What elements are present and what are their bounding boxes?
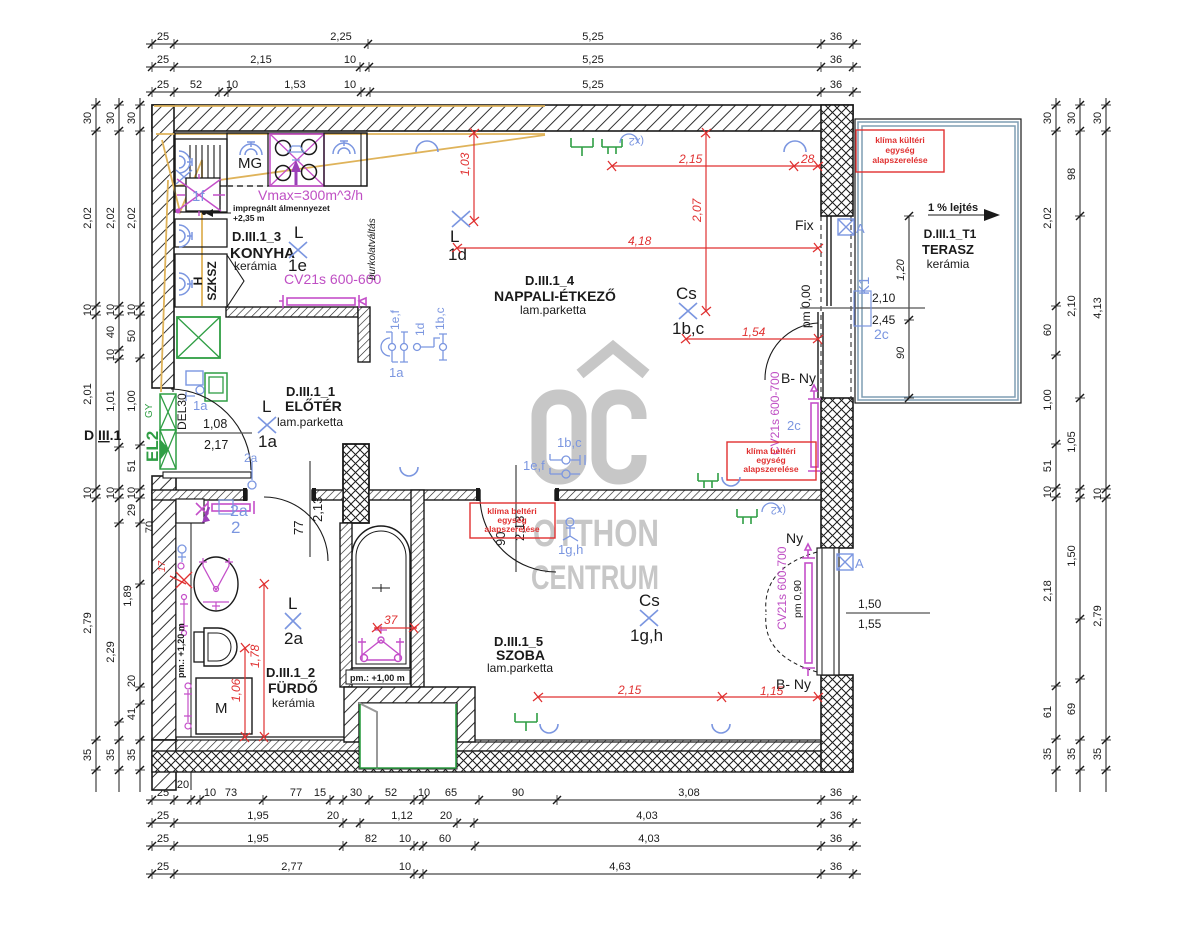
svg-text:1,08: 1,08 (203, 417, 227, 431)
svg-text:OTTHON: OTTHON (533, 513, 659, 555)
svg-text:2,13: 2,13 (310, 497, 325, 522)
svg-text:alapszerelése: alapszerelése (484, 524, 540, 534)
svg-text:EL2: EL2 (143, 431, 162, 462)
svg-text:Ny: Ny (786, 530, 803, 546)
svg-text:L: L (450, 227, 459, 246)
svg-text:D.III.1_1: D.III.1_1 (286, 384, 335, 399)
svg-text:77: 77 (291, 521, 306, 535)
svg-text:1,06: 1,06 (229, 678, 243, 702)
svg-text:1d: 1d (413, 323, 427, 336)
svg-text:D.III.1_3: D.III.1_3 (232, 229, 281, 244)
svg-text:SZKSZ: SZKSZ (205, 261, 219, 300)
svg-text:25: 25 (157, 79, 169, 91)
svg-text:1 % lejtés: 1 % lejtés (928, 202, 978, 214)
svg-text:40: 40 (105, 326, 117, 338)
svg-text:lam.parketta: lam.parketta (487, 661, 553, 675)
svg-text:1g,h: 1g,h (558, 542, 583, 557)
svg-text:kerámia: kerámia (927, 257, 970, 271)
svg-text:10: 10 (344, 79, 356, 91)
svg-text:30: 30 (1042, 112, 1054, 124)
svg-text:10: 10 (399, 833, 411, 845)
svg-text:L: L (294, 223, 303, 242)
svg-text:2a: 2a (244, 451, 258, 465)
svg-text:10: 10 (418, 787, 430, 799)
svg-text:30: 30 (1092, 112, 1104, 124)
svg-text:25: 25 (157, 861, 169, 873)
svg-text:2,15: 2,15 (678, 152, 703, 166)
svg-text:4,13: 4,13 (1092, 297, 1104, 318)
svg-text:1,78: 1,78 (248, 644, 262, 668)
svg-text:35: 35 (126, 749, 138, 761)
svg-text:90: 90 (512, 787, 524, 799)
svg-text:alapszerelése: alapszerelése (743, 464, 799, 474)
svg-text:1b,c: 1b,c (557, 435, 582, 450)
svg-text:3,08: 3,08 (678, 787, 699, 799)
svg-text:1,12: 1,12 (391, 810, 412, 822)
svg-text:52: 52 (385, 787, 397, 799)
svg-text:2,79: 2,79 (1092, 605, 1104, 626)
svg-text:klíma kültéri: klíma kültéri (875, 135, 925, 145)
svg-text:pm 0,00: pm 0,00 (799, 284, 813, 328)
svg-text:1,95: 1,95 (247, 833, 268, 845)
svg-text:1e,f: 1e,f (388, 309, 402, 330)
svg-text:20: 20 (126, 675, 138, 687)
svg-text:2,01: 2,01 (82, 383, 94, 404)
svg-text:2,02: 2,02 (126, 207, 138, 228)
svg-text:25: 25 (157, 54, 169, 66)
svg-text:Cs: Cs (639, 591, 660, 610)
svg-text:1e,f: 1e,f (523, 458, 545, 473)
svg-text:36: 36 (830, 833, 842, 845)
svg-text:10: 10 (126, 304, 138, 316)
svg-text:4,03: 4,03 (636, 810, 657, 822)
svg-text:2c: 2c (787, 418, 801, 433)
svg-text:1,53: 1,53 (284, 79, 305, 91)
svg-text:35: 35 (1092, 748, 1104, 760)
svg-text:1,20: 1,20 (895, 258, 907, 280)
svg-text:10: 10 (82, 487, 94, 499)
svg-text:+2,35 m: +2,35 m (233, 213, 265, 223)
svg-text:77: 77 (290, 787, 302, 799)
svg-text:D.III.1_T1: D.III.1_T1 (924, 227, 977, 241)
svg-text:TERASZ: TERASZ (922, 242, 974, 257)
svg-text:1,00: 1,00 (1042, 389, 1054, 410)
svg-text:1b,c: 1b,c (433, 307, 447, 330)
svg-text:2,29: 2,29 (105, 641, 117, 662)
svg-text:30: 30 (126, 112, 138, 124)
svg-text:25: 25 (157, 31, 169, 43)
svg-text:61: 61 (1042, 706, 1054, 718)
svg-text:NAPPALI-ÉTKEZŐ: NAPPALI-ÉTKEZŐ (494, 287, 616, 304)
svg-text:1,03: 1,03 (458, 152, 472, 176)
svg-text:2,07: 2,07 (690, 197, 704, 223)
svg-text:25: 25 (157, 833, 169, 845)
svg-text:2,77: 2,77 (281, 861, 302, 873)
svg-text:36: 36 (830, 787, 842, 799)
svg-text:4,03: 4,03 (638, 833, 659, 845)
svg-text:52: 52 (190, 79, 202, 91)
svg-text:A: A (856, 221, 865, 236)
svg-text:2,15: 2,15 (617, 683, 642, 697)
svg-text:10: 10 (226, 79, 238, 91)
svg-text:2: 2 (231, 518, 240, 537)
svg-text:kerámia: kerámia (234, 259, 277, 273)
svg-text:2,18: 2,18 (1042, 580, 1054, 601)
svg-text:2,25: 2,25 (330, 31, 351, 43)
svg-text:69: 69 (1066, 703, 1078, 715)
svg-text:MG: MG (238, 155, 262, 172)
svg-text:H: H (191, 277, 205, 286)
svg-text:10: 10 (344, 54, 356, 66)
svg-text:1,00: 1,00 (126, 390, 138, 411)
svg-text:2,17: 2,17 (204, 438, 228, 452)
svg-text:51: 51 (1042, 460, 1054, 472)
svg-text:1b,c: 1b,c (672, 319, 705, 338)
svg-text:36: 36 (830, 79, 842, 91)
svg-text:1a: 1a (193, 398, 208, 413)
svg-text:CV21s 600-700: CV21s 600-700 (775, 546, 789, 630)
svg-text:10: 10 (204, 787, 216, 799)
svg-text:41: 41 (126, 708, 138, 720)
svg-text:D.III.1_4: D.III.1_4 (525, 273, 575, 288)
svg-text:2,10: 2,10 (1066, 295, 1078, 316)
svg-text:lam.parketta: lam.parketta (277, 415, 343, 429)
svg-text:35: 35 (1066, 748, 1078, 760)
svg-text:36: 36 (830, 810, 842, 822)
svg-text:30: 30 (82, 112, 94, 124)
svg-text:60: 60 (1042, 324, 1054, 336)
svg-text:5,25: 5,25 (582, 54, 603, 66)
svg-text:alapszerelése: alapszerelése (872, 155, 928, 165)
svg-text:36: 36 (830, 54, 842, 66)
svg-text:2,02: 2,02 (105, 207, 117, 228)
svg-text:35: 35 (82, 749, 94, 761)
svg-text:2a: 2a (284, 629, 303, 648)
svg-text:10: 10 (105, 487, 117, 499)
svg-text:10: 10 (82, 304, 94, 316)
svg-text:M: M (215, 700, 228, 717)
svg-text:10: 10 (399, 861, 411, 873)
svg-text:DEL30: DEL30 (175, 393, 189, 430)
svg-text:30: 30 (1066, 112, 1078, 124)
svg-text:2,79: 2,79 (82, 612, 94, 633)
svg-text:2,45: 2,45 (872, 313, 896, 327)
svg-text:10: 10 (1042, 486, 1054, 498)
svg-text:2,15: 2,15 (250, 54, 271, 66)
svg-text:4,18: 4,18 (628, 234, 652, 248)
svg-text:35: 35 (105, 749, 117, 761)
svg-text:4,63: 4,63 (609, 861, 630, 873)
svg-text:2,02: 2,02 (1042, 207, 1054, 228)
svg-text:egység: egység (885, 145, 914, 155)
svg-text:1,50: 1,50 (1066, 545, 1078, 566)
svg-text:20: 20 (327, 810, 339, 822)
svg-text:1,95: 1,95 (247, 810, 268, 822)
svg-text:1,01: 1,01 (105, 390, 117, 411)
svg-text:30: 30 (350, 787, 362, 799)
svg-text:10: 10 (105, 349, 117, 361)
svg-text:20: 20 (177, 779, 189, 791)
svg-text:Fix: Fix (795, 217, 814, 233)
svg-text:1f: 1f (192, 188, 205, 205)
svg-text:Vmax=300m^3/h: Vmax=300m^3/h (258, 187, 363, 203)
svg-text:pm.: +1,00 m: pm.: +1,00 m (350, 673, 405, 683)
svg-text:2c: 2c (874, 326, 889, 342)
svg-text:FÜRDŐ: FÜRDŐ (268, 679, 318, 696)
svg-text:D.III.1_2: D.III.1_2 (266, 665, 315, 680)
svg-text:burkolatváltás: burkolatváltás (367, 218, 378, 280)
svg-text:Cs: Cs (676, 284, 697, 303)
svg-text:1,55: 1,55 (858, 617, 882, 631)
svg-text:B- Ny: B- Ny (781, 370, 816, 386)
svg-text:20: 20 (440, 810, 452, 822)
svg-text:ELŐTÉR: ELŐTÉR (285, 397, 342, 414)
svg-text:10: 10 (126, 487, 138, 499)
svg-text:5,25: 5,25 (582, 79, 603, 91)
svg-text:10: 10 (1092, 488, 1104, 500)
svg-text:65: 65 (445, 787, 457, 799)
svg-text:lam.parketta: lam.parketta (520, 303, 586, 317)
svg-text:73: 73 (225, 787, 237, 799)
svg-text:98: 98 (1066, 168, 1078, 180)
svg-text:50: 50 (126, 330, 138, 342)
svg-text:pm 0,90: pm 0,90 (792, 580, 804, 618)
svg-text:L: L (262, 397, 271, 416)
svg-text:37: 37 (384, 613, 399, 627)
svg-text:1a: 1a (389, 365, 404, 380)
svg-text:36: 36 (830, 31, 842, 43)
svg-text:35: 35 (1042, 748, 1054, 760)
svg-text:82: 82 (365, 833, 377, 845)
svg-text:kerámia: kerámia (272, 696, 315, 710)
svg-text:A: A (855, 556, 864, 571)
svg-text:51: 51 (126, 460, 138, 472)
svg-text:5,25: 5,25 (582, 31, 603, 43)
svg-text:1,05: 1,05 (1066, 431, 1078, 452)
svg-text:60: 60 (439, 833, 451, 845)
svg-text:15: 15 (314, 787, 326, 799)
svg-text:2,10: 2,10 (872, 291, 896, 305)
svg-text:pm.: +1,20 m: pm.: +1,20 m (176, 623, 186, 678)
svg-text:1g,h: 1g,h (630, 626, 663, 645)
svg-text:25: 25 (157, 810, 169, 822)
svg-text:1,54: 1,54 (742, 325, 766, 339)
svg-text:1,15: 1,15 (760, 684, 784, 698)
svg-text:2,02: 2,02 (82, 207, 94, 228)
svg-text:29: 29 (126, 504, 138, 516)
svg-text:36: 36 (830, 861, 842, 873)
svg-text:30: 30 (105, 112, 117, 124)
svg-text:1,50: 1,50 (858, 597, 882, 611)
svg-text:17: 17 (157, 560, 168, 572)
svg-text:28: 28 (800, 152, 815, 166)
svg-text:D III.1: D III.1 (84, 427, 122, 443)
svg-text:10: 10 (105, 304, 117, 316)
svg-text:1,89: 1,89 (122, 585, 134, 606)
svg-text:90: 90 (895, 346, 907, 359)
svg-text:GY: GY (144, 403, 155, 418)
svg-text:1a: 1a (258, 432, 277, 451)
svg-text:L: L (288, 594, 297, 613)
svg-text:impregnált álmennyezet: impregnált álmennyezet (233, 203, 330, 213)
